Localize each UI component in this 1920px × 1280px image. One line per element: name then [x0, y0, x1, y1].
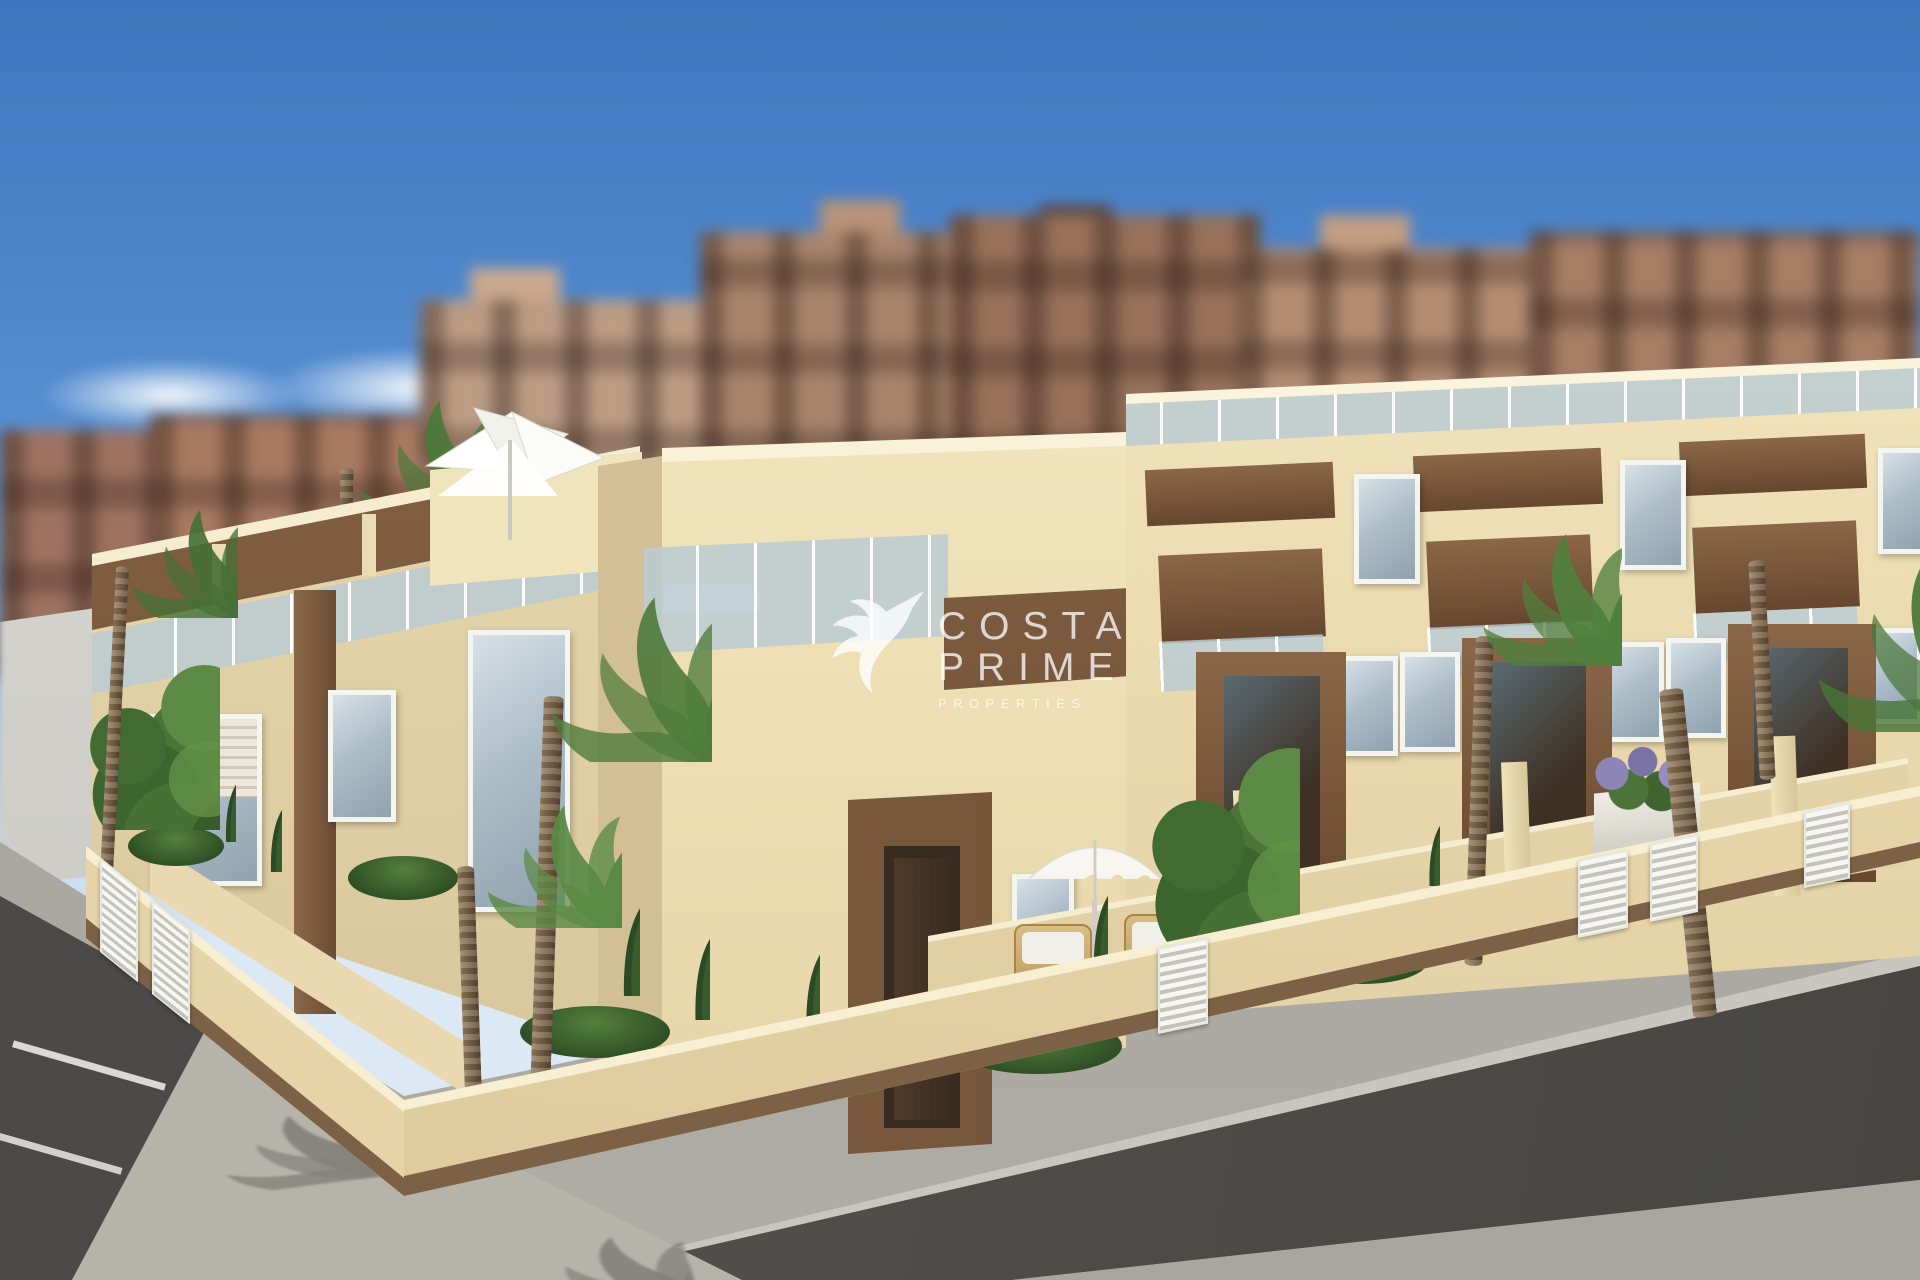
cypress-tree [1398, 760, 1440, 886]
watermark-text: COSTA PRIME PROPERTIES [938, 578, 1134, 711]
brand-line-properties: PROPERTIES [938, 696, 1134, 711]
louvered-gate [1650, 834, 1698, 922]
watermark-logo: COSTA PRIME PROPERTIES [822, 578, 1134, 711]
louvered-gate [1804, 802, 1850, 888]
louvered-gate [1158, 938, 1208, 1034]
window [1338, 656, 1398, 756]
cypress-tree [766, 872, 820, 1030]
architectural-render-scene: COSTA PRIME PROPERTIES [0, 0, 1920, 1280]
window [1400, 652, 1460, 752]
wood-header-band [1145, 462, 1335, 526]
palm-tree-right [1322, 386, 1622, 666]
louvered-gate [1578, 850, 1628, 938]
brand-line-costa: COSTA [938, 606, 1134, 647]
palm-tree-left [8, 388, 238, 618]
brand-line-prime: PRIME [938, 647, 1134, 688]
cypress-tree [652, 850, 710, 1020]
cypress-tree [238, 742, 282, 872]
palm-tree-front-short [332, 668, 622, 928]
hummingbird-icon [822, 578, 926, 706]
palm-tree-far-right [1608, 352, 1920, 732]
shrub [128, 826, 224, 866]
